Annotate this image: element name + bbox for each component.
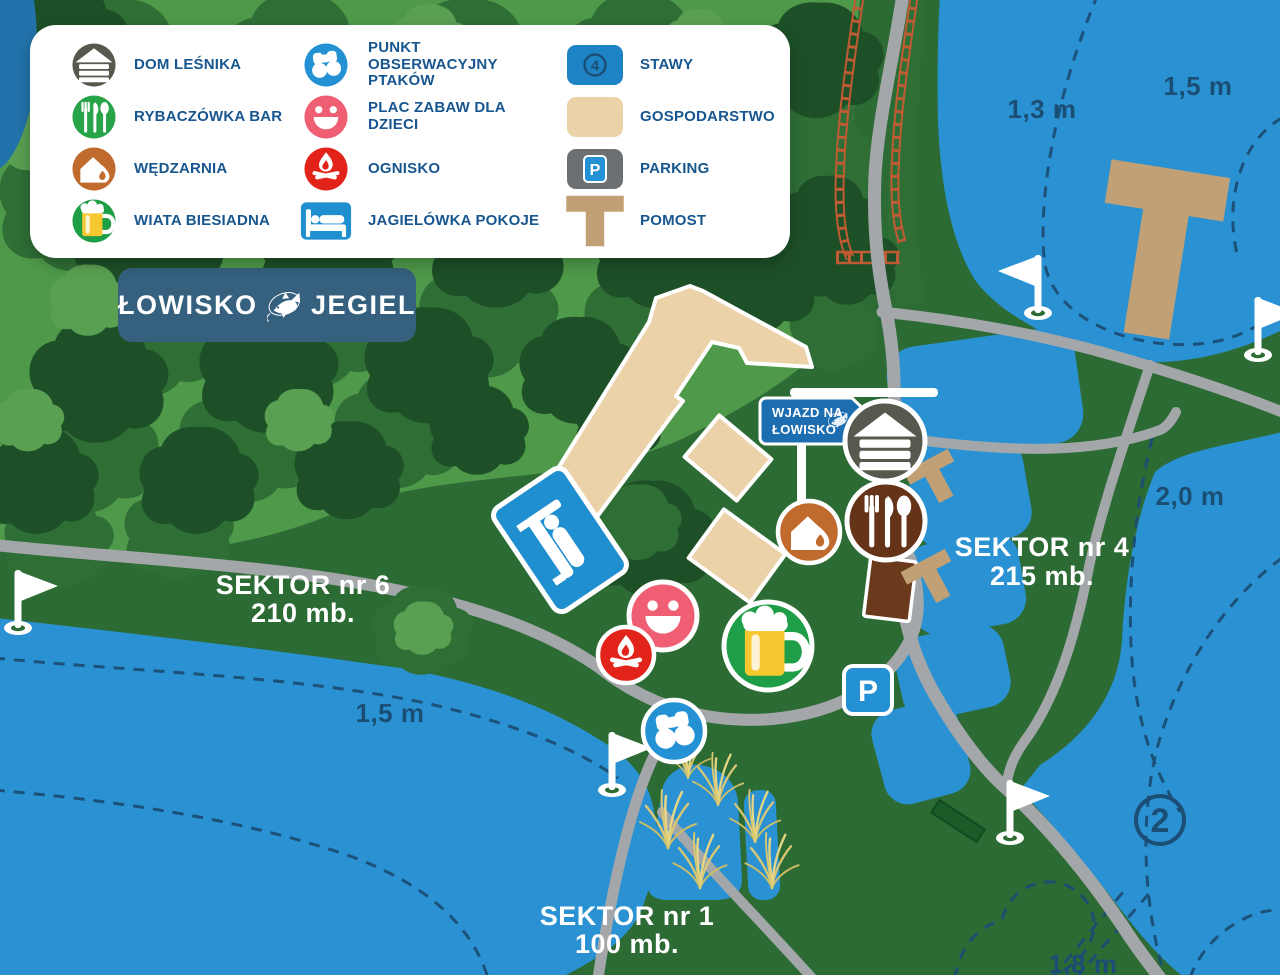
depth-label: 1,5 m	[1164, 71, 1233, 101]
farm-swatch	[566, 96, 624, 138]
smokehouse-icon	[778, 501, 840, 563]
parking-swatch: P	[566, 148, 624, 190]
legend-label-line: PUNKT OBSERWACYJNY	[368, 40, 550, 74]
legend-label-wiata-biesiadna: WIATA BIESIADNA	[134, 213, 284, 230]
bed-icon	[300, 199, 352, 243]
legend-label-line: PTAKÓW	[368, 73, 550, 90]
svg-text:ŁOWISKO: ŁOWISKO	[772, 422, 836, 437]
svg-text:P: P	[590, 162, 601, 179]
legend-label-parking: PARKING	[640, 161, 775, 178]
cutlery-icon	[70, 94, 118, 140]
legend-label-rybaczowka-bar: RYBACZÓWKA BAR	[134, 109, 284, 126]
svg-text:P: P	[858, 675, 878, 708]
legend-label-gospodarstwo: GOSPODARSTWO	[640, 109, 775, 126]
campfire-icon	[598, 627, 654, 683]
site-logo-banner: ŁOWISKO JEGIEL	[118, 268, 416, 342]
depth-label: 2,0 m	[1156, 481, 1225, 511]
binoculars-icon	[300, 42, 352, 88]
beer-mug-icon	[70, 198, 118, 244]
depth-label: 1,3 m	[1008, 94, 1077, 124]
svg-text:210 mb.: 210 mb.	[251, 598, 355, 628]
depth-label: 1,5 m	[356, 698, 425, 728]
cabin-icon	[845, 401, 925, 481]
brown-building	[864, 556, 917, 621]
smiley-icon	[300, 94, 352, 140]
campfire-icon	[300, 146, 352, 192]
svg-text:2: 2	[1151, 802, 1170, 840]
svg-text:4: 4	[591, 58, 600, 75]
svg-text:SEKTOR nr 1: SEKTOR nr 1	[540, 901, 715, 931]
legend-label-wedzarnia: WĘDZARNIA	[134, 161, 284, 178]
svg-text:215 mb.: 215 mb.	[990, 561, 1094, 591]
legend-label-punkt-obserwacyjny: PUNKT OBSERWACYJNY PTAKÓW	[368, 40, 550, 90]
fish-logo-icon	[267, 274, 302, 336]
legend-label-jagielowka-pokoje: JAGIELÓWKA POKOJE	[368, 213, 550, 230]
binoculars-icon	[643, 700, 705, 762]
cabin-icon	[70, 42, 118, 88]
depth-label: 1,8 m	[1049, 949, 1118, 975]
banner-word-lowisko: ŁOWISKO	[118, 290, 258, 321]
map-legend: DOM LEŚNIKA PUNKT OBSERWACYJNY PTAKÓW 4 …	[30, 25, 790, 258]
legend-label-pomost: POMOST	[640, 213, 775, 230]
pier-swatch	[566, 195, 624, 247]
cutlery-icon	[847, 482, 925, 560]
lowisko-jegiel-map-page: 1,3 m 1,5 m 2,0 m 1,5 m 1,8 m 2 SEKTOR n…	[0, 0, 1280, 975]
beer-mug-icon	[724, 602, 812, 690]
svg-text:100 mb.: 100 mb.	[575, 929, 679, 959]
pond-swatch: 4	[566, 44, 624, 86]
banner-word-jegiel: JEGIEL	[311, 290, 416, 321]
legend-label-plac-zabaw: PLAC ZABAW DLA DZIECI	[368, 100, 550, 134]
svg-text:WJAZD NA: WJAZD NA	[772, 405, 843, 420]
legend-label-stawy: STAWY	[640, 57, 775, 74]
svg-text:SEKTOR nr 4: SEKTOR nr 4	[955, 532, 1130, 562]
svg-text:SEKTOR nr 6: SEKTOR nr 6	[216, 570, 391, 600]
legend-label-ognisko: OGNISKO	[368, 161, 550, 178]
parking-sign: P	[844, 666, 892, 714]
legend-label-dom-lesnika: DOM LEŚNIKA	[134, 57, 284, 74]
smokehouse-icon	[70, 146, 118, 192]
